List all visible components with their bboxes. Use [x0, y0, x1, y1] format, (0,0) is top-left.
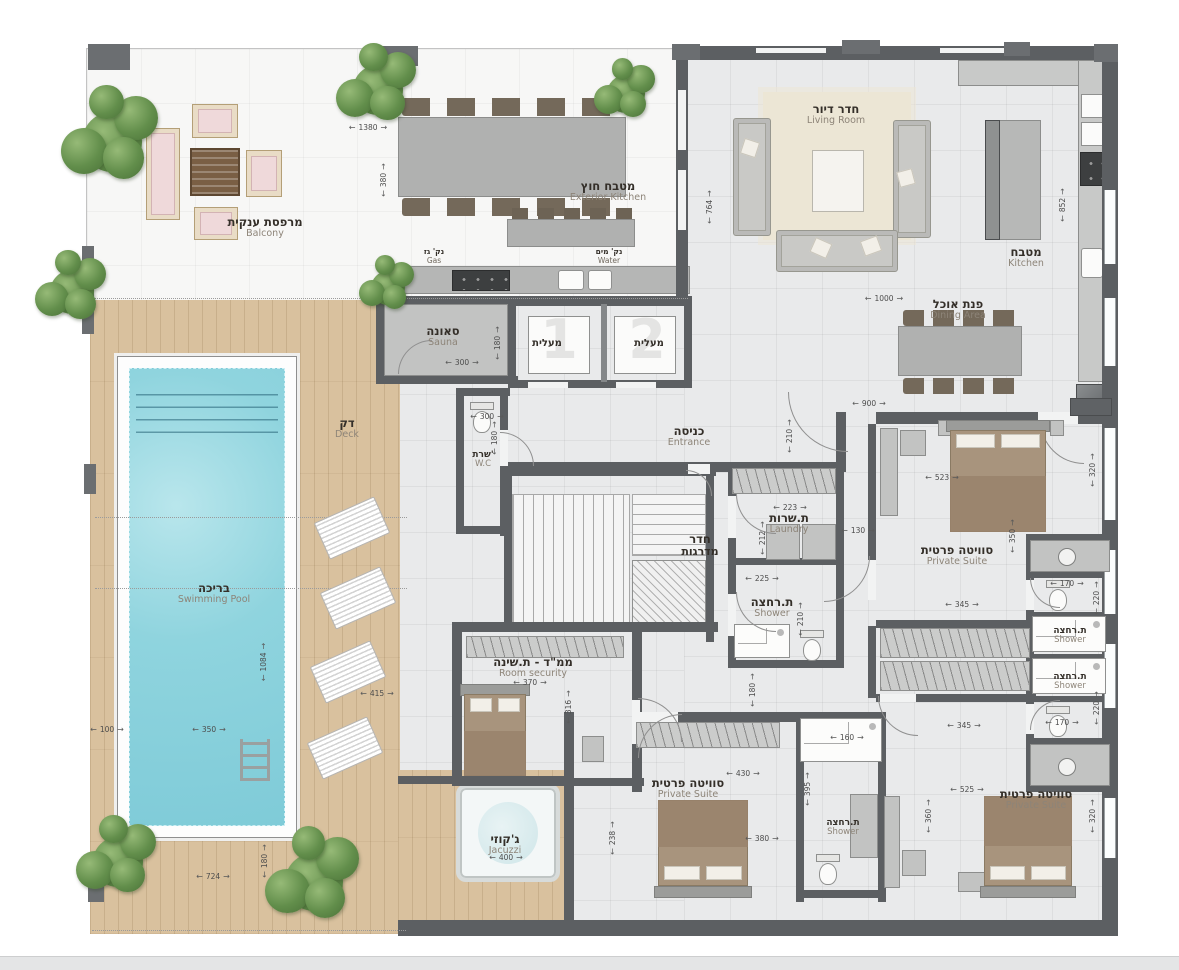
balcony-armchair-cushion	[198, 109, 232, 133]
wall	[876, 620, 1036, 628]
wall	[796, 890, 886, 898]
shower-tray-icon	[1032, 616, 1106, 652]
door-opening	[868, 560, 876, 600]
wall	[452, 622, 462, 786]
bed-pillow	[956, 434, 995, 448]
sofa-left	[733, 118, 771, 236]
closet	[880, 628, 1030, 658]
bed-pillow	[990, 866, 1025, 880]
column-post	[1094, 44, 1118, 62]
wall	[456, 388, 464, 534]
door-opening	[728, 496, 736, 538]
stair-treads	[512, 494, 630, 628]
desk	[880, 428, 898, 516]
dryer-icon	[802, 524, 836, 560]
shower-tray-icon	[1032, 658, 1106, 694]
bed-blanket	[464, 731, 526, 776]
bed-blanket	[658, 800, 748, 847]
stair-void-hatch	[632, 560, 706, 626]
bed-pillow	[1001, 434, 1040, 448]
tree-icon	[258, 826, 370, 938]
dining-chairs	[903, 310, 1023, 326]
wall	[728, 660, 840, 668]
wall	[1026, 696, 1112, 702]
balcony-armchair-cushion	[200, 212, 232, 235]
wall	[672, 46, 1116, 60]
kitchen-island-cabinets	[985, 120, 1000, 240]
door-opening	[940, 48, 1010, 53]
shower-tray-icon	[800, 718, 882, 762]
bed-blanket	[984, 796, 1072, 846]
kitchen-sink-icon	[1081, 248, 1103, 278]
column-post	[842, 40, 880, 54]
stove-icon	[1080, 152, 1104, 186]
column-post	[84, 464, 96, 494]
desk-chair	[582, 736, 604, 762]
balcony-armchair-cushion	[251, 156, 277, 191]
elevator-number: 2	[612, 308, 682, 386]
balcony-coffee-table	[190, 148, 240, 196]
footer-strip	[0, 956, 1179, 970]
vanity	[850, 794, 878, 858]
bed-pillow	[1031, 866, 1066, 880]
wall	[504, 462, 716, 476]
toilet-icon	[473, 411, 491, 433]
column-post	[672, 44, 700, 60]
wall	[508, 296, 516, 388]
wall	[376, 376, 518, 384]
sink-icon	[558, 270, 584, 290]
pool-water	[129, 368, 285, 826]
window	[1104, 428, 1116, 520]
bed-pillow	[470, 698, 492, 712]
gas-hob-icon	[452, 270, 510, 291]
wall	[564, 712, 574, 922]
bed-pillow	[498, 698, 520, 712]
bed-headboard	[654, 886, 752, 898]
stair-treads	[632, 494, 706, 556]
toilet-icon	[800, 630, 824, 638]
door-opening	[678, 90, 686, 150]
window	[1104, 190, 1116, 264]
pool	[117, 356, 297, 838]
sink-icon	[588, 270, 612, 290]
wall	[504, 476, 512, 632]
closet	[880, 661, 1030, 691]
pool-lane-lines	[136, 383, 278, 439]
oven-icon	[1081, 94, 1103, 118]
exterior-bar-counter	[507, 219, 635, 247]
jacuzzi-tub	[456, 784, 560, 882]
dining-chairs	[903, 378, 1023, 394]
toilet-icon	[803, 639, 821, 661]
tree-icon	[71, 815, 166, 910]
desk-chair	[902, 850, 926, 876]
exterior-kitchen-counter	[388, 266, 690, 294]
door-opening	[756, 48, 826, 53]
oven-icon	[1081, 122, 1103, 146]
tree-icon	[30, 250, 115, 335]
tree-icon	[355, 255, 421, 321]
wardrobe	[884, 796, 900, 888]
wall	[398, 920, 1104, 936]
sink-icon	[1058, 548, 1076, 566]
tv-cabinet	[1070, 398, 1112, 416]
floor-plan-page: 12מרפסת ענקיתBalconyמטבח חוץExterior Kit…	[0, 0, 1179, 970]
wall	[684, 296, 692, 388]
tree-icon	[55, 85, 170, 200]
wall	[398, 776, 572, 784]
wall	[452, 622, 718, 632]
desk-chair	[900, 430, 926, 456]
bed-headboard	[980, 886, 1076, 898]
bar-stools	[512, 208, 634, 219]
closet	[732, 468, 836, 494]
column-post	[1004, 42, 1030, 56]
toilet-icon	[470, 402, 494, 410]
bed-blanket	[950, 476, 1046, 532]
window	[1104, 798, 1116, 858]
closet	[466, 636, 624, 658]
door-opening	[678, 170, 686, 230]
elevator-divider-wall	[601, 304, 607, 382]
elevator-number: 1	[524, 308, 594, 386]
tree-icon	[331, 43, 426, 138]
bed-pillow	[664, 866, 700, 880]
coffee-table	[812, 150, 864, 212]
toilet-icon	[816, 854, 840, 862]
window	[1104, 298, 1116, 366]
tree-icon	[590, 58, 662, 130]
dining-table	[898, 326, 1022, 376]
wall	[868, 626, 876, 698]
pool-ladder-icon	[240, 739, 270, 781]
column-post	[88, 44, 130, 70]
sink-icon	[1058, 758, 1076, 776]
bed-pillow	[706, 866, 742, 880]
toilet-icon	[819, 863, 837, 885]
